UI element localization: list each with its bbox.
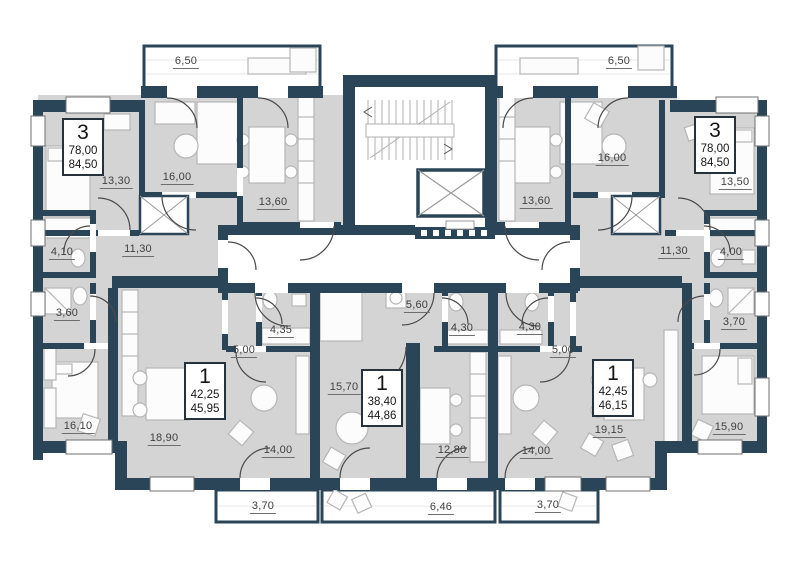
apartment-area-living: 78,00 <box>698 142 732 156</box>
room-area-label: 4,00 <box>718 246 744 260</box>
room-area-label: 4,10 <box>49 246 75 260</box>
apartment-area-total: 44,86 <box>365 409 399 423</box>
apartment-area-living: 42,25 <box>188 388 222 402</box>
room-area-label: 5,60 <box>404 299 430 313</box>
room-area-label: 5,00 <box>231 344 257 358</box>
room-area-label: 14,00 <box>262 444 295 458</box>
apartment-info-box-bottom-left: 1 42,25 45,95 <box>184 362 226 420</box>
room-area-label: 4,30 <box>517 321 543 335</box>
room-area-label: 15,70 <box>328 381 361 395</box>
apartment-area-total: 45,95 <box>188 402 222 416</box>
apartment-info-box-bottom-right: 1 42,45 46,15 <box>592 359 634 417</box>
apartment-info-box-top-right: 3 78,00 84,50 <box>694 116 736 174</box>
apartment-area-living: 42,45 <box>596 385 630 399</box>
apartment-type: 1 <box>365 372 399 395</box>
room-area-label: 15,90 <box>713 421 746 435</box>
apartment-info-box-bottom-center: 1 38,40 44,86 <box>361 369 403 427</box>
room-area-label: 13,60 <box>257 196 290 210</box>
room-area-label: 16,00 <box>596 152 629 166</box>
apartment-type: 1 <box>188 365 222 388</box>
room-area-label: 16,00 <box>161 171 194 185</box>
apartment-type: 3 <box>66 121 100 144</box>
room-area-label: 6,50 <box>606 55 632 69</box>
room-area-label: 18,90 <box>148 432 181 446</box>
room-area-label: 16,10 <box>62 420 95 434</box>
apartment-type: 3 <box>698 119 732 142</box>
room-area-label: 4,30 <box>449 322 475 336</box>
room-area-label: 13,30 <box>100 175 133 189</box>
apartment-area-total: 84,50 <box>66 158 100 172</box>
room-area-label: 5,00 <box>550 344 576 358</box>
room-area-label: 12,80 <box>436 444 469 458</box>
apartment-area-total: 84,50 <box>698 156 732 170</box>
apartment-area-living: 38,40 <box>365 395 399 409</box>
room-area-label: 3,70 <box>535 499 561 513</box>
apartment-area-total: 46,15 <box>596 399 630 413</box>
room-area-label: 13,50 <box>719 176 752 190</box>
room-area-label: 3,70 <box>721 316 747 330</box>
room-area-label: 4,35 <box>268 324 294 338</box>
apartment-type: 1 <box>596 362 630 385</box>
apartment-area-living: 78,00 <box>66 144 100 158</box>
room-area-label: 19,15 <box>593 424 626 438</box>
room-area-label: 3,60 <box>54 307 80 321</box>
room-area-label: 11,30 <box>658 245 690 259</box>
floor-plan-drawing <box>0 0 800 565</box>
room-area-label: 11,30 <box>122 243 154 257</box>
floor-plan: 6,50 13,30 16,00 13,60 4,10 11,30 3,60 1… <box>0 0 800 565</box>
room-area-label: 6,46 <box>428 501 454 515</box>
room-area-label: 3,70 <box>250 500 276 514</box>
room-area-label: 6,50 <box>173 55 199 69</box>
apartment-info-box-top-left: 3 78,00 84,50 <box>62 118 104 176</box>
room-area-label: 14,00 <box>520 445 553 459</box>
room-area-label: 13,60 <box>520 195 553 209</box>
